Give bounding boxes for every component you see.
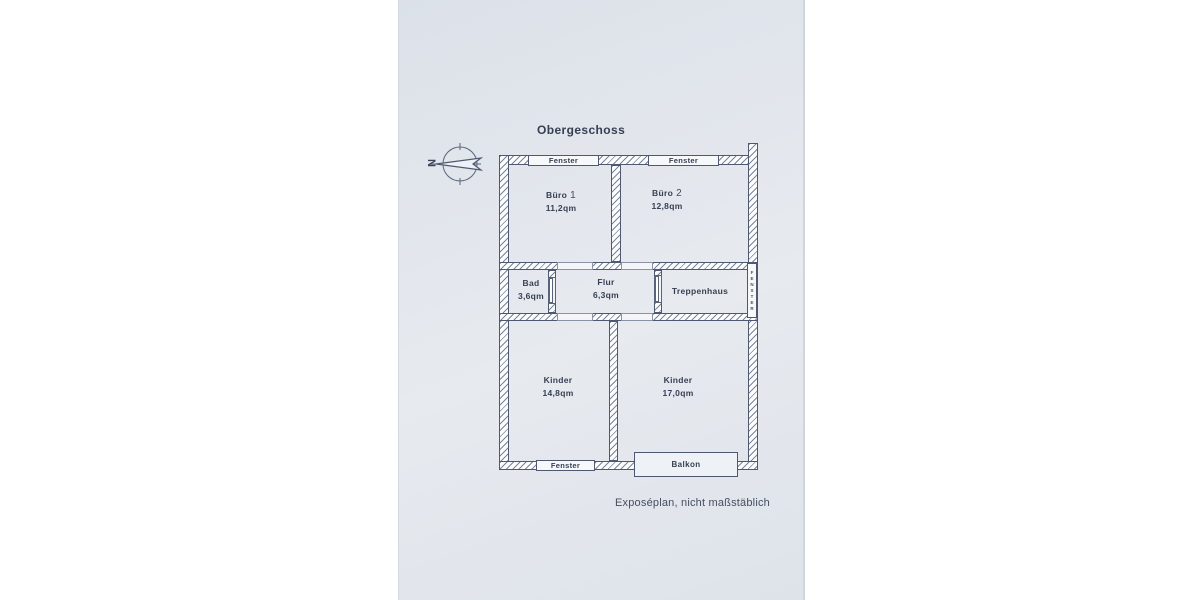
room-area: 6,3qm: [576, 289, 636, 302]
room-label-kinder-links: Kinder 14,8qm: [518, 374, 598, 400]
window-top-right-label: Fenster: [669, 156, 698, 165]
room-name: Kinder: [638, 374, 718, 387]
wall-divider-kinder: [609, 321, 618, 461]
window-bottom-left: Fenster: [536, 460, 595, 471]
room-label-kinder-rechts: Kinder 17,0qm: [638, 374, 718, 400]
balcony: Balkon: [634, 452, 738, 477]
room-label-buero-1: Büro1 11,2qm: [521, 189, 601, 215]
door-opening-kinder-rechts: [621, 313, 653, 321]
room-number: 1: [570, 190, 576, 201]
room-number: 2: [676, 188, 682, 199]
room-area: 11,2qm: [521, 202, 601, 215]
compass-north-letter: N: [425, 159, 437, 167]
room-area: 12,8qm: [627, 200, 707, 213]
footer-note: Exposéplan, nicht maßstäblich: [615, 497, 770, 509]
north-compass-icon: N: [424, 133, 494, 193]
wall-divider-bueros: [611, 165, 621, 262]
room-area: 3,6qm: [501, 290, 561, 303]
window-top-left-label: Fenster: [549, 156, 578, 165]
room-label-buero-2: Büro2 12,8qm: [627, 187, 707, 213]
floor-plan-sheet: Obergeschoss N: [398, 0, 805, 600]
room-name: Büro2: [627, 187, 707, 200]
door-opening-kinder-links: [557, 313, 593, 321]
room-label-bad: Bad 3,6qm: [501, 277, 561, 303]
room-label-flur: Flur 6,3qm: [576, 276, 636, 302]
room-area: 14,8qm: [518, 387, 598, 400]
window-top-right: Fenster: [648, 155, 719, 166]
room-name: Flur: [576, 276, 636, 289]
door-opening-buero-2: [621, 262, 653, 270]
scanned-page-background: Obergeschoss N: [0, 0, 1200, 600]
room-name: Bad: [501, 277, 561, 290]
window-top-left: Fenster: [528, 155, 599, 166]
page-title: Obergeschoss: [537, 123, 625, 137]
room-name: Kinder: [518, 374, 598, 387]
room-label-treppenhaus: Treppenhaus: [655, 285, 745, 298]
room-area: 17,0qm: [638, 387, 718, 400]
window-bottom-left-label: Fenster: [551, 461, 580, 470]
door-opening-buero-1: [557, 262, 593, 270]
room-name: Büro1: [521, 189, 601, 202]
window-right-vertical: FENSTER: [747, 263, 757, 318]
room-name: Treppenhaus: [655, 285, 745, 298]
balcony-label: Balkon: [671, 460, 700, 469]
